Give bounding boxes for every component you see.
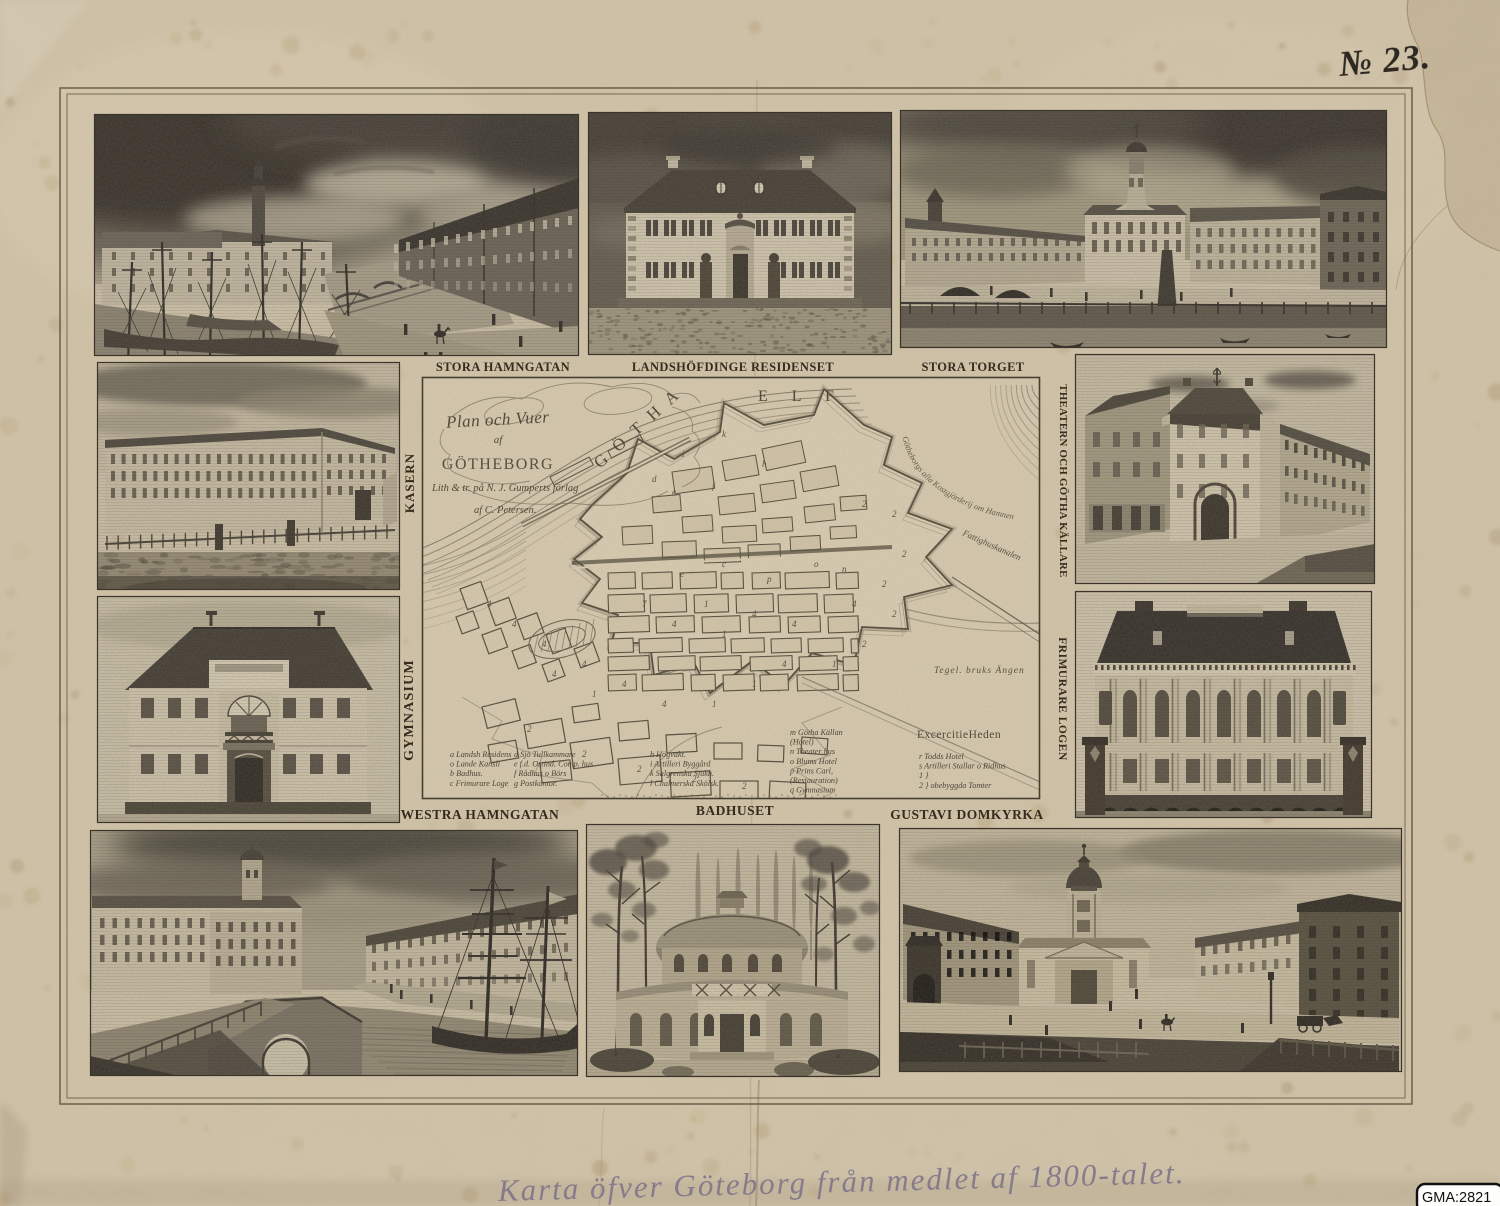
svg-text:GUSTAVI DOMKYRKA: GUSTAVI DOMKYRKA [890, 807, 1043, 822]
svg-text:GYMNASIUM: GYMNASIUM [402, 659, 417, 761]
svg-text:LANDSHÖFDINGE RESIDENSET: LANDSHÖFDINGE RESIDENSET [632, 360, 835, 374]
svg-text:GMA:2821: GMA:2821 [1422, 1190, 1491, 1206]
svg-text:FRIMURARE LOGEN: FRIMURARE LOGEN [1056, 637, 1068, 761]
svg-text:STORA TORGET: STORA TORGET [921, 360, 1024, 374]
svg-text:STORA HAMNGATAN: STORA HAMNGATAN [436, 360, 570, 374]
svg-text:THEATERN OCH GÖTHA KÄLLARE: THEATERN OCH GÖTHA KÄLLARE [1057, 384, 1070, 577]
svg-text:KASERN: KASERN [402, 453, 417, 513]
svg-text:№ 23.: № 23. [1336, 36, 1432, 84]
svg-text:BADHUSET: BADHUSET [696, 803, 774, 818]
svg-text:WESTRA HAMNGATAN: WESTRA HAMNGATAN [401, 807, 560, 822]
